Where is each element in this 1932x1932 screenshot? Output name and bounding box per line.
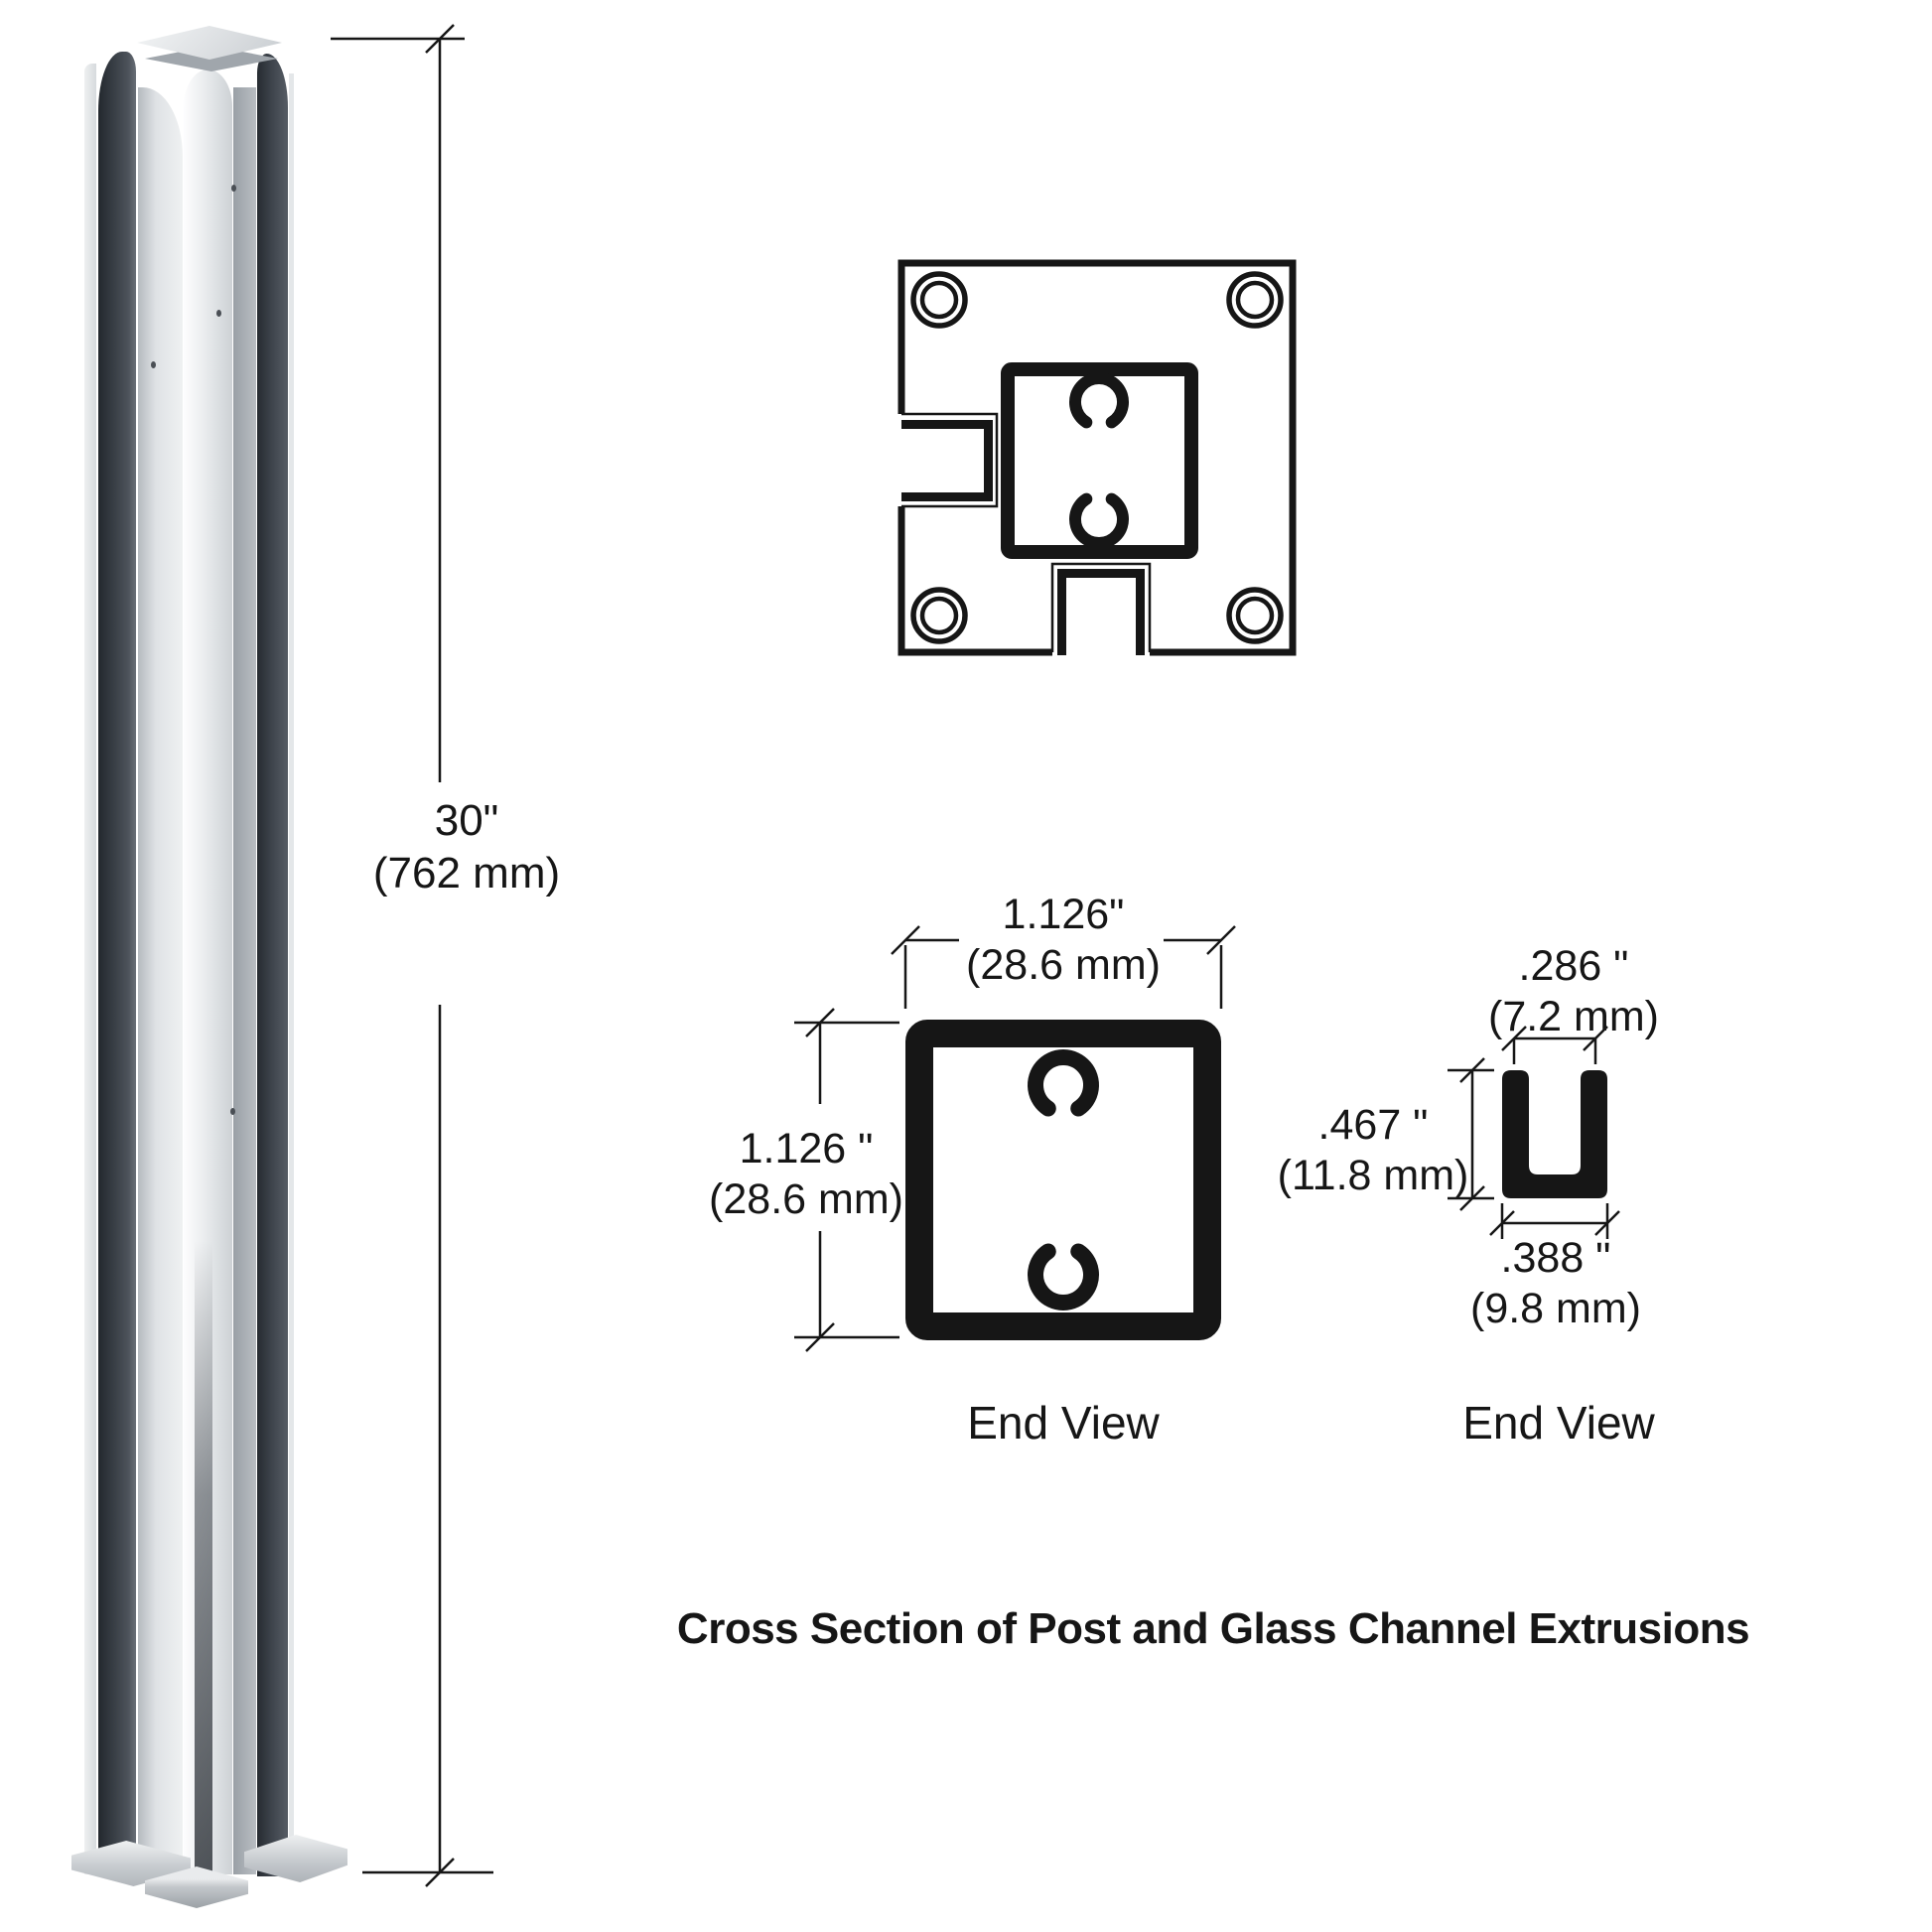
screw-boss-clip-top [1075, 378, 1123, 422]
corner-hole-inner [922, 283, 956, 317]
post-profile [1008, 369, 1191, 552]
dimension-inches: .388 " [1470, 1233, 1641, 1284]
dimension-mm: (11.8 mm) [1278, 1151, 1469, 1201]
diagram-page: 30" (762 mm) 1.126" (28.6 mm) 1.126 " (2… [0, 0, 1932, 1932]
dimension-inches: 1.126" [966, 890, 1161, 940]
post-end-view-label: End View [967, 1396, 1160, 1449]
post-profile-end-view [919, 1034, 1207, 1326]
dimension-inches: 1.126 " [709, 1124, 903, 1174]
channel-end-view-label: End View [1462, 1396, 1655, 1449]
dimension-inches: 30" [373, 794, 560, 847]
corner-hole-inner [922, 599, 956, 632]
screw-boss-clip-top [1035, 1057, 1091, 1108]
channel-end-view-drawing [1448, 1027, 1619, 1239]
left-glass-channel-profile [901, 425, 989, 497]
height-dimension-lines [331, 25, 493, 1886]
dimension-inches: .286 " [1488, 941, 1659, 992]
dimension-mm: (28.6 mm) [966, 940, 1161, 991]
corner-hole-inner [1238, 599, 1272, 632]
dimension-mm: (7.2 mm) [1488, 992, 1659, 1042]
post-width-dimension-label: 1.126" (28.6 mm) [966, 890, 1161, 991]
channel-width-dimension-label: .388 " (9.8 mm) [1470, 1233, 1641, 1334]
channel-height-dimension-label: .467 " (11.8 mm) [1278, 1100, 1469, 1201]
post-height-dimension-label: 30" (762 mm) [373, 794, 560, 899]
dimension-inches: .467 " [1278, 1100, 1469, 1151]
post-height-end-dimension-label: 1.126 " (28.6 mm) [709, 1124, 903, 1225]
screw-boss-clip-bottom [1035, 1252, 1091, 1303]
page-title: Cross Section of Post and Glass Channel … [677, 1604, 1749, 1654]
corner-hole-inner [1238, 283, 1272, 317]
dimension-mm: (762 mm) [373, 847, 560, 899]
bottom-glass-channel-profile [1062, 574, 1141, 656]
plate-cross-section [901, 263, 1293, 655]
glass-channel-profile [1502, 1070, 1607, 1198]
dimension-mm: (28.6 mm) [709, 1174, 903, 1225]
dimension-mm: (9.8 mm) [1470, 1284, 1641, 1334]
channel-opening-dimension-label: .286 " (7.2 mm) [1488, 941, 1659, 1042]
plate-outline [901, 263, 1293, 652]
screw-boss-clip-bottom [1075, 499, 1123, 543]
